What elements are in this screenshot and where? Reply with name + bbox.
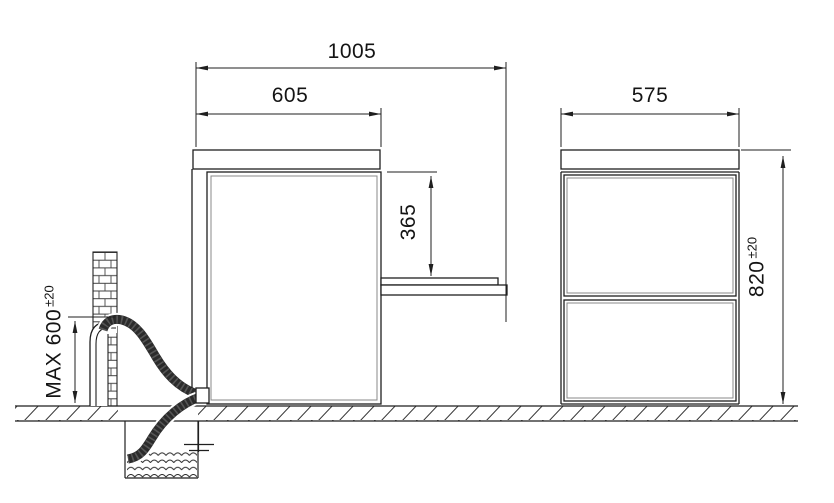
- label-total-depth: 1005: [328, 40, 377, 64]
- body-outline: [207, 172, 381, 404]
- floor: [15, 406, 798, 421]
- label-door-drop: 365: [397, 204, 421, 241]
- label-drain-max-height-value: MAX 600: [43, 309, 66, 399]
- upper-door-panel: [564, 175, 736, 296]
- label-body-width: 575: [632, 84, 669, 108]
- label-body-height-value: 820: [746, 261, 769, 298]
- body-inner-line: [211, 176, 377, 400]
- top-panel-side: [193, 150, 380, 169]
- label-body-height-tolerance: ±20: [745, 237, 760, 259]
- floor-hatch-right: [198, 407, 798, 421]
- drain-connector: [196, 388, 209, 403]
- dimension-575: [561, 108, 739, 147]
- label-body-depth: 605: [272, 84, 309, 108]
- appliance-side-view: [192, 150, 507, 404]
- label-body-height: 820±20: [745, 237, 770, 297]
- top-panel-front: [561, 150, 739, 169]
- floor-hatch-left: [15, 407, 118, 421]
- installation-diagram: 1005 605 575 365 820±20 MAX 600±20: [0, 0, 834, 503]
- drain-hose: [103, 319, 200, 459]
- appliance-front-view: [561, 150, 739, 404]
- open-door-inner-panel: [381, 278, 498, 285]
- label-drain-max-height-tolerance: ±20: [42, 285, 57, 307]
- diagram-canvas: [0, 0, 834, 503]
- dimension-605: [196, 108, 381, 147]
- label-drain-max-height: MAX 600±20: [42, 285, 67, 399]
- lower-panel: [564, 300, 736, 401]
- water-level-symbol: [184, 421, 214, 452]
- open-door-outer-panel: [381, 285, 507, 295]
